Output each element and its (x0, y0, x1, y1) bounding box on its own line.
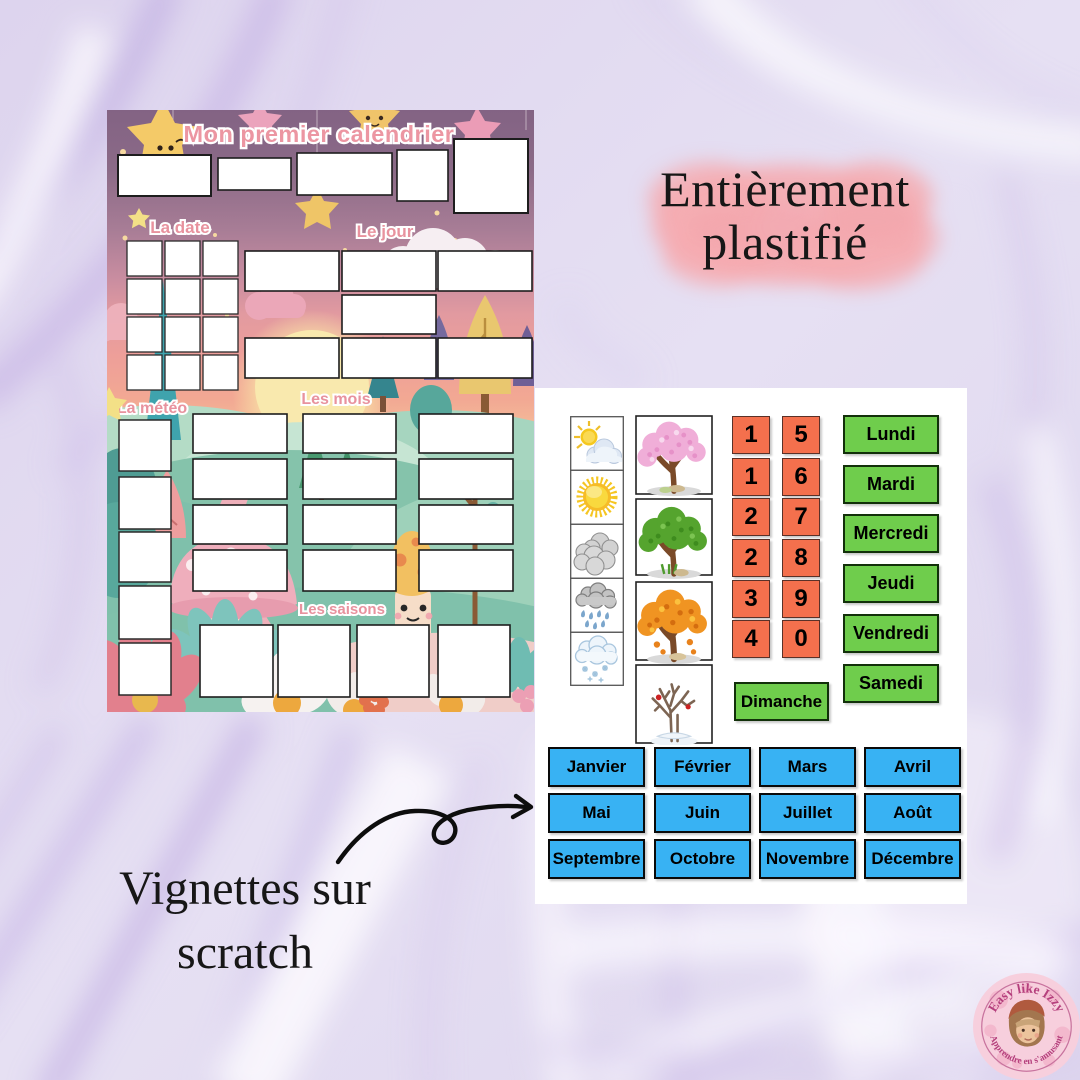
svg-text:La date: La date (150, 218, 210, 237)
svg-text:Le jour: Le jour (357, 222, 414, 241)
svg-text:La météo: La météo (117, 400, 187, 417)
svg-text:Les saisons: Les saisons (299, 601, 385, 618)
svg-text:Les mois: Les mois (301, 391, 370, 408)
svg-text:Mon premier calendrier: Mon premier calendrier (184, 121, 455, 147)
